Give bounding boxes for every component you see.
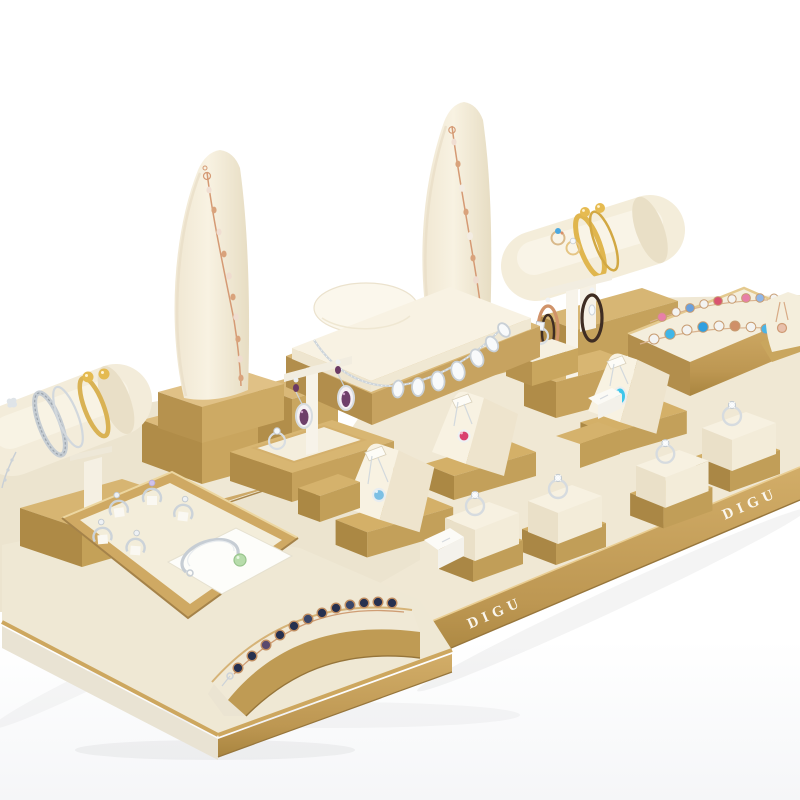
jewelry-display-photo: DIGU DIGU <box>0 0 800 800</box>
lavender-stone <box>149 480 155 486</box>
scene-canvas: DIGU DIGU <box>0 0 800 800</box>
